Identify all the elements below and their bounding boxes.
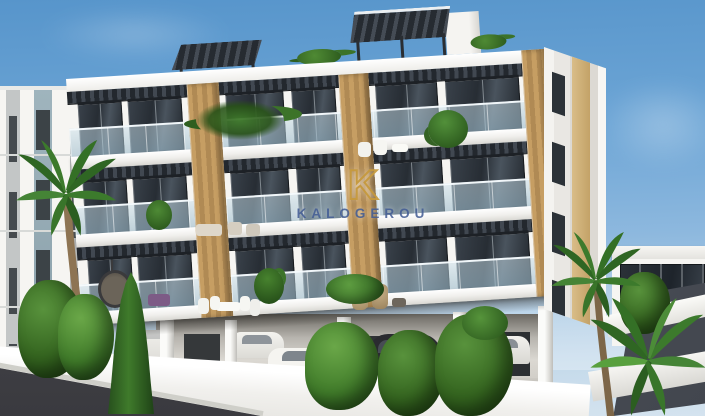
roof-stair-volume — [445, 11, 482, 55]
palm-bush — [588, 286, 705, 416]
table — [392, 144, 408, 152]
outdoor-sofa — [196, 222, 262, 237]
architectural-render: K KALOGEROU — [0, 0, 705, 416]
chair — [358, 142, 371, 157]
chair — [374, 140, 387, 155]
chair — [198, 298, 209, 314]
white-dining-set — [196, 296, 260, 318]
side-window-slit — [552, 142, 565, 186]
shrub — [462, 306, 508, 340]
balcony-plant — [428, 110, 468, 148]
chair — [210, 296, 220, 310]
table — [392, 298, 406, 307]
purple-cushion — [148, 294, 170, 306]
car-glass — [242, 335, 272, 344]
watermark: K KALOGEROU — [288, 164, 438, 230]
planter-plants — [326, 274, 384, 304]
roof-palm-fronds — [196, 100, 284, 140]
balcony-plant — [254, 268, 284, 304]
chair — [228, 222, 242, 235]
balcony-plant — [146, 200, 172, 230]
side-window-slit — [552, 72, 565, 116]
sofa — [196, 224, 222, 236]
watermark-text: KALOGEROU — [288, 206, 438, 221]
balcony-chairs — [358, 140, 420, 158]
chair — [240, 296, 250, 311]
chair — [246, 224, 260, 236]
watermark-logo: K — [288, 164, 438, 206]
palm-fronds — [590, 298, 705, 416]
chair — [250, 299, 260, 316]
